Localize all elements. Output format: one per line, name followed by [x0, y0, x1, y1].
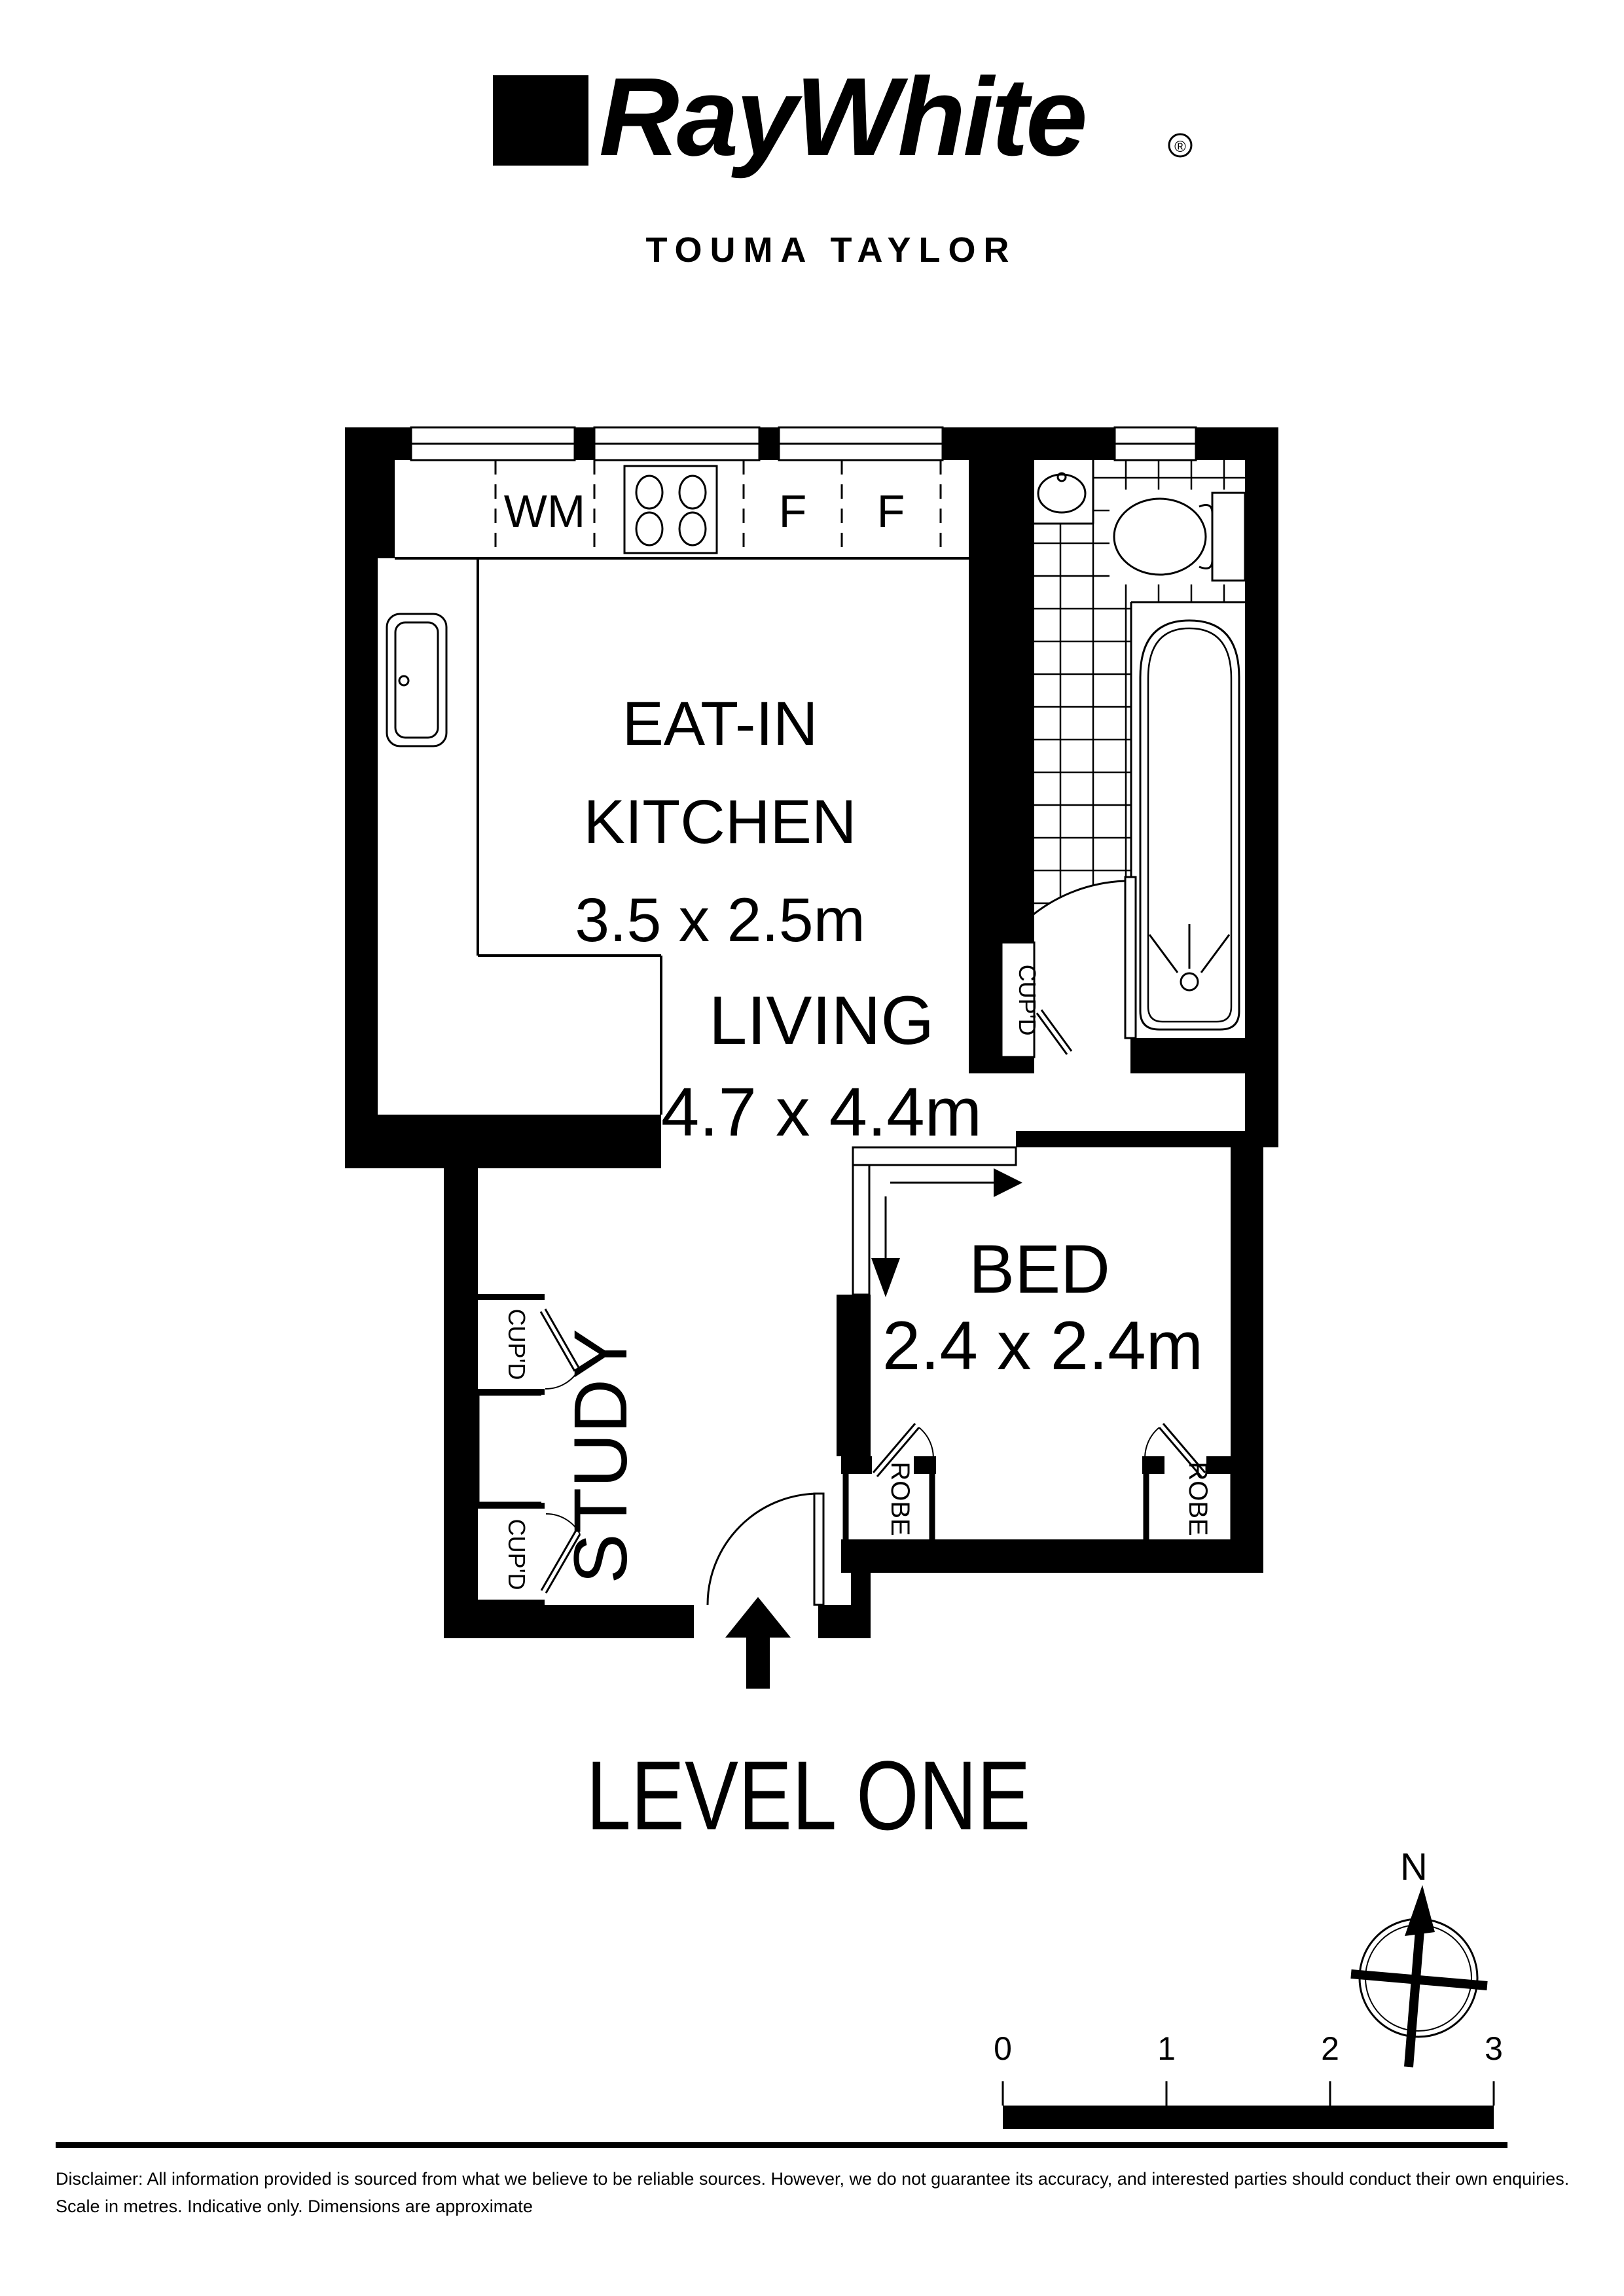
disclaimer-line1: Disclaimer: All information provided is …: [56, 2169, 1569, 2189]
brand-logo-text: RayWhite: [599, 55, 1085, 179]
compass-icon: N: [1351, 1846, 1487, 2067]
bathtub-icon: [1131, 602, 1245, 1038]
wall-bottom-mid: [818, 1605, 871, 1638]
cupboard-label: CUP'D: [1014, 965, 1041, 1036]
sliding-door-track: [853, 1147, 1016, 1165]
robe-label: ROBE: [1183, 1462, 1212, 1535]
scale-bar: 0 1 2 3: [994, 2030, 1503, 2129]
wall-top-pier2: [759, 427, 779, 460]
bed-name: BED: [969, 1231, 1110, 1308]
scale-tick-label: 2: [1321, 2030, 1339, 2067]
wall-bed-left: [837, 1295, 871, 1456]
level-label-group: LEVEL ONE: [586, 1741, 1030, 1850]
sliding-door-arrow-down-icon: [871, 1196, 900, 1297]
sink-icon: [387, 614, 446, 746]
wall-top-pier1: [575, 427, 594, 460]
bed-dimensions: 2.4 x 2.4m: [882, 1308, 1203, 1384]
entry-arrow-icon: [725, 1597, 791, 1689]
kitchen-name-line1: EAT-IN: [622, 689, 818, 759]
registered-trademark-icon: ®: [1169, 134, 1191, 156]
sliding-door-panel: [853, 1165, 869, 1295]
window: [594, 427, 759, 460]
wall-kitchen-bottom: [345, 1115, 661, 1168]
living-name: LIVING: [709, 982, 934, 1059]
wall-bed-bottom: [841, 1539, 1263, 1573]
window-bathroom: [1115, 427, 1196, 460]
kitchen-name-line2: KITCHEN: [584, 787, 857, 857]
cooktop-icon: [624, 466, 717, 553]
scale-tick-label: 3: [1485, 2030, 1503, 2067]
fridge-label: F: [877, 486, 905, 537]
door-swing-arc: [708, 1494, 819, 1605]
washing-machine-label: WM: [504, 486, 585, 537]
wall-bath-bottom: [1130, 1038, 1278, 1073]
raywhite-logo-square-icon: [493, 75, 588, 166]
robe-label: ROBE: [886, 1462, 914, 1535]
footer-divider: [56, 2142, 1507, 2148]
compass-north-label: N: [1400, 1846, 1428, 1888]
bed-area: BED 2.4 x 2.4m ROBE ROBE: [841, 1147, 1237, 1539]
toilet-icon: [1110, 490, 1245, 584]
kitchen-dimensions: 3.5 x 2.5m: [575, 886, 865, 955]
living-area: LIVING 4.7 x 4.4m: [661, 982, 982, 1151]
window: [779, 427, 943, 460]
living-dimensions: 4.7 x 4.4m: [661, 1074, 982, 1151]
office-name: TOUMA TAYLOR: [645, 230, 1017, 270]
wall-left-lower: [444, 1168, 478, 1638]
entry-door: [708, 1494, 823, 1605]
floorplan-page: RayWhite ® TOUMA TAYLOR: [0, 0, 1624, 2296]
scale-tick-label: 0: [994, 2030, 1012, 2067]
basin-icon: [1034, 460, 1093, 524]
cupboard-label: CUP'D: [503, 1309, 530, 1380]
wall-bed-top: [1016, 1131, 1278, 1147]
sliding-door-arrow-right-icon: [890, 1168, 1022, 1197]
window: [411, 427, 575, 460]
fridge-label: F: [779, 486, 807, 537]
wall-left-upper: [345, 427, 378, 1115]
brand-header: RayWhite ® TOUMA TAYLOR: [493, 55, 1191, 270]
wall-bottom-connector: [851, 1573, 871, 1605]
robe-right: ROBE: [1142, 1424, 1237, 1539]
wall-bottom-left: [444, 1605, 694, 1638]
scale-tick-label: 1: [1157, 2030, 1176, 2067]
registered-mark-glyph: ®: [1174, 138, 1186, 156]
wall-top-seg2: [943, 427, 1115, 460]
door-leaf: [814, 1494, 823, 1605]
level-label: LEVEL ONE: [586, 1741, 1030, 1850]
scale-bar-fill: [1003, 2106, 1494, 2129]
door-leaf: [1125, 877, 1136, 1038]
disclaimer-line2: Scale in metres. Indicative only. Dimens…: [56, 2197, 533, 2216]
cupboard-label: CUP'D: [503, 1519, 530, 1590]
